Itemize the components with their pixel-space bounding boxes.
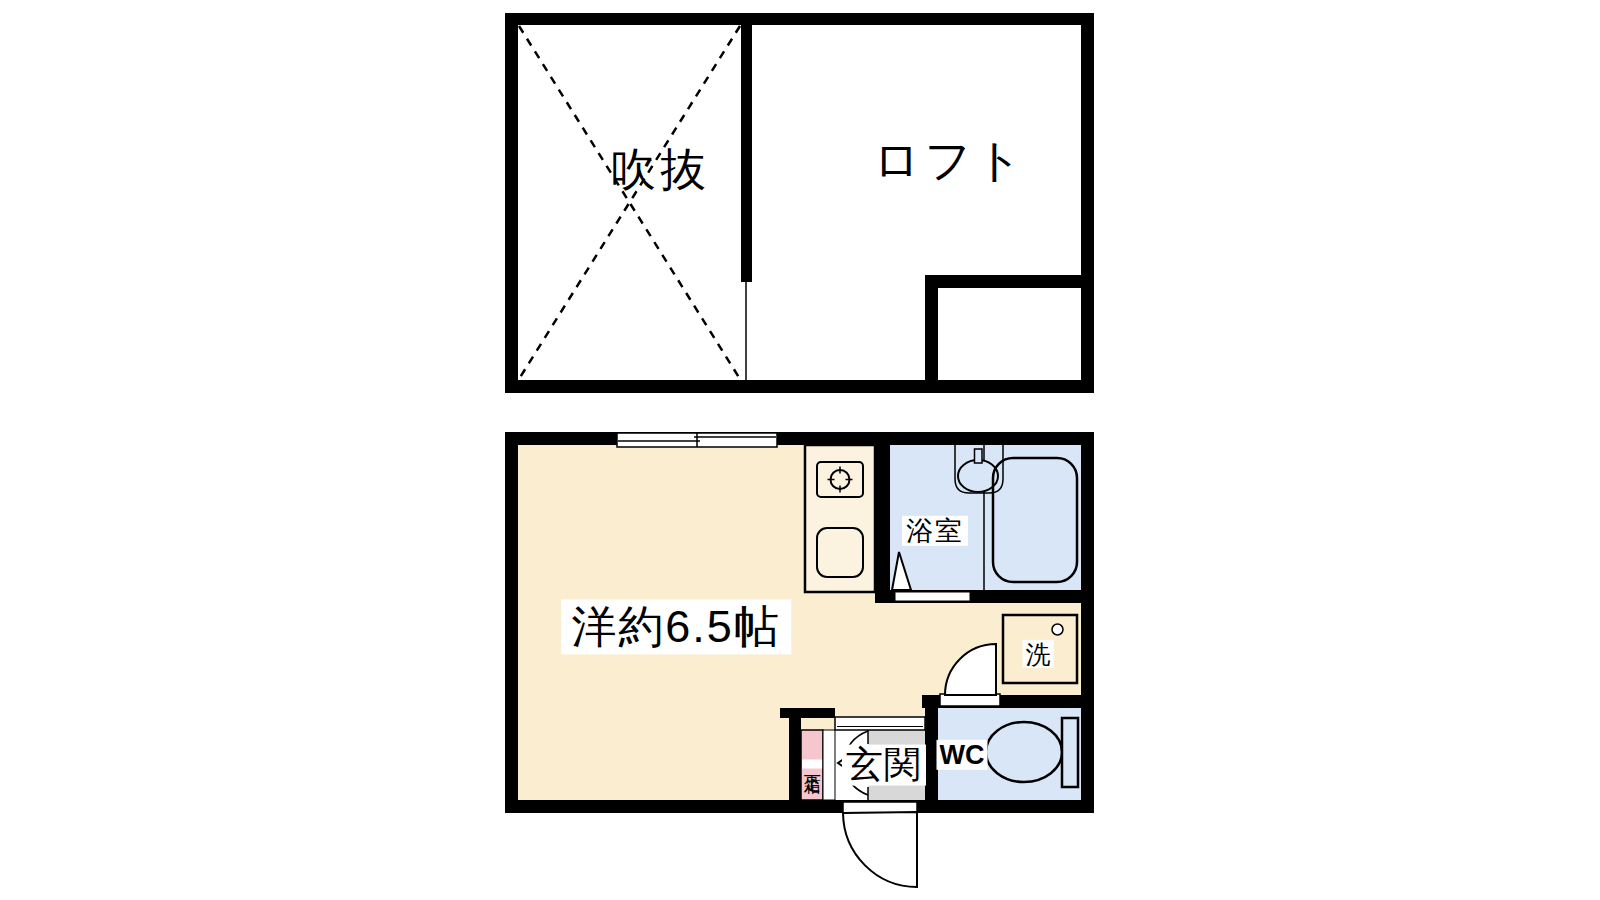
entrance-top-wall-stub [780,708,835,718]
loft-room-label: ロフト [873,136,1026,184]
shoe-box-side-strip [823,730,835,800]
main-room-label: 洋約6.5帖 [561,599,791,654]
void-loft-divider-wall [741,25,752,282]
outer-wall-left [505,432,518,813]
shoe-box-label: 下足箱 [802,760,822,769]
entrance-left-wall [789,718,801,800]
lower-floor [505,432,1094,887]
void-room-label: 吹抜 [610,145,710,193]
front-door-swing-icon [843,812,917,887]
water-tap-icon [1052,624,1063,635]
loft-notch-wall-vertical [925,275,938,381]
entrance-label: 玄関 [842,745,926,786]
outer-wall-right [1081,432,1094,813]
bathroom-door-threshold [895,592,970,601]
entrance-inner-threshold [835,717,925,730]
toilet-bowl-icon [986,722,1062,782]
floor-plan-page: 吹抜 ロフト 洋約6.5帖 浴室 洗 WC 玄関 下足箱 [0,0,1600,900]
laundry-label: 洗 [1023,640,1054,668]
loft-notch-wall-horizontal [925,275,1094,288]
toilet-tank-icon [1062,718,1078,787]
bathroom-label: 浴室 [902,516,968,546]
faucet-icon [975,449,983,463]
outer-wall-bottom [505,800,1094,813]
outer-wall-top [505,432,1094,445]
toilet-label: WC [937,740,988,770]
kitchen-unit-icon [805,445,875,592]
upper-floor [505,13,1094,393]
upper-floor-area [518,25,1081,380]
floor-plan-drawing [0,0,1600,900]
window-symbol-icon [617,433,777,447]
kitchen-bath-wall [875,445,890,603]
